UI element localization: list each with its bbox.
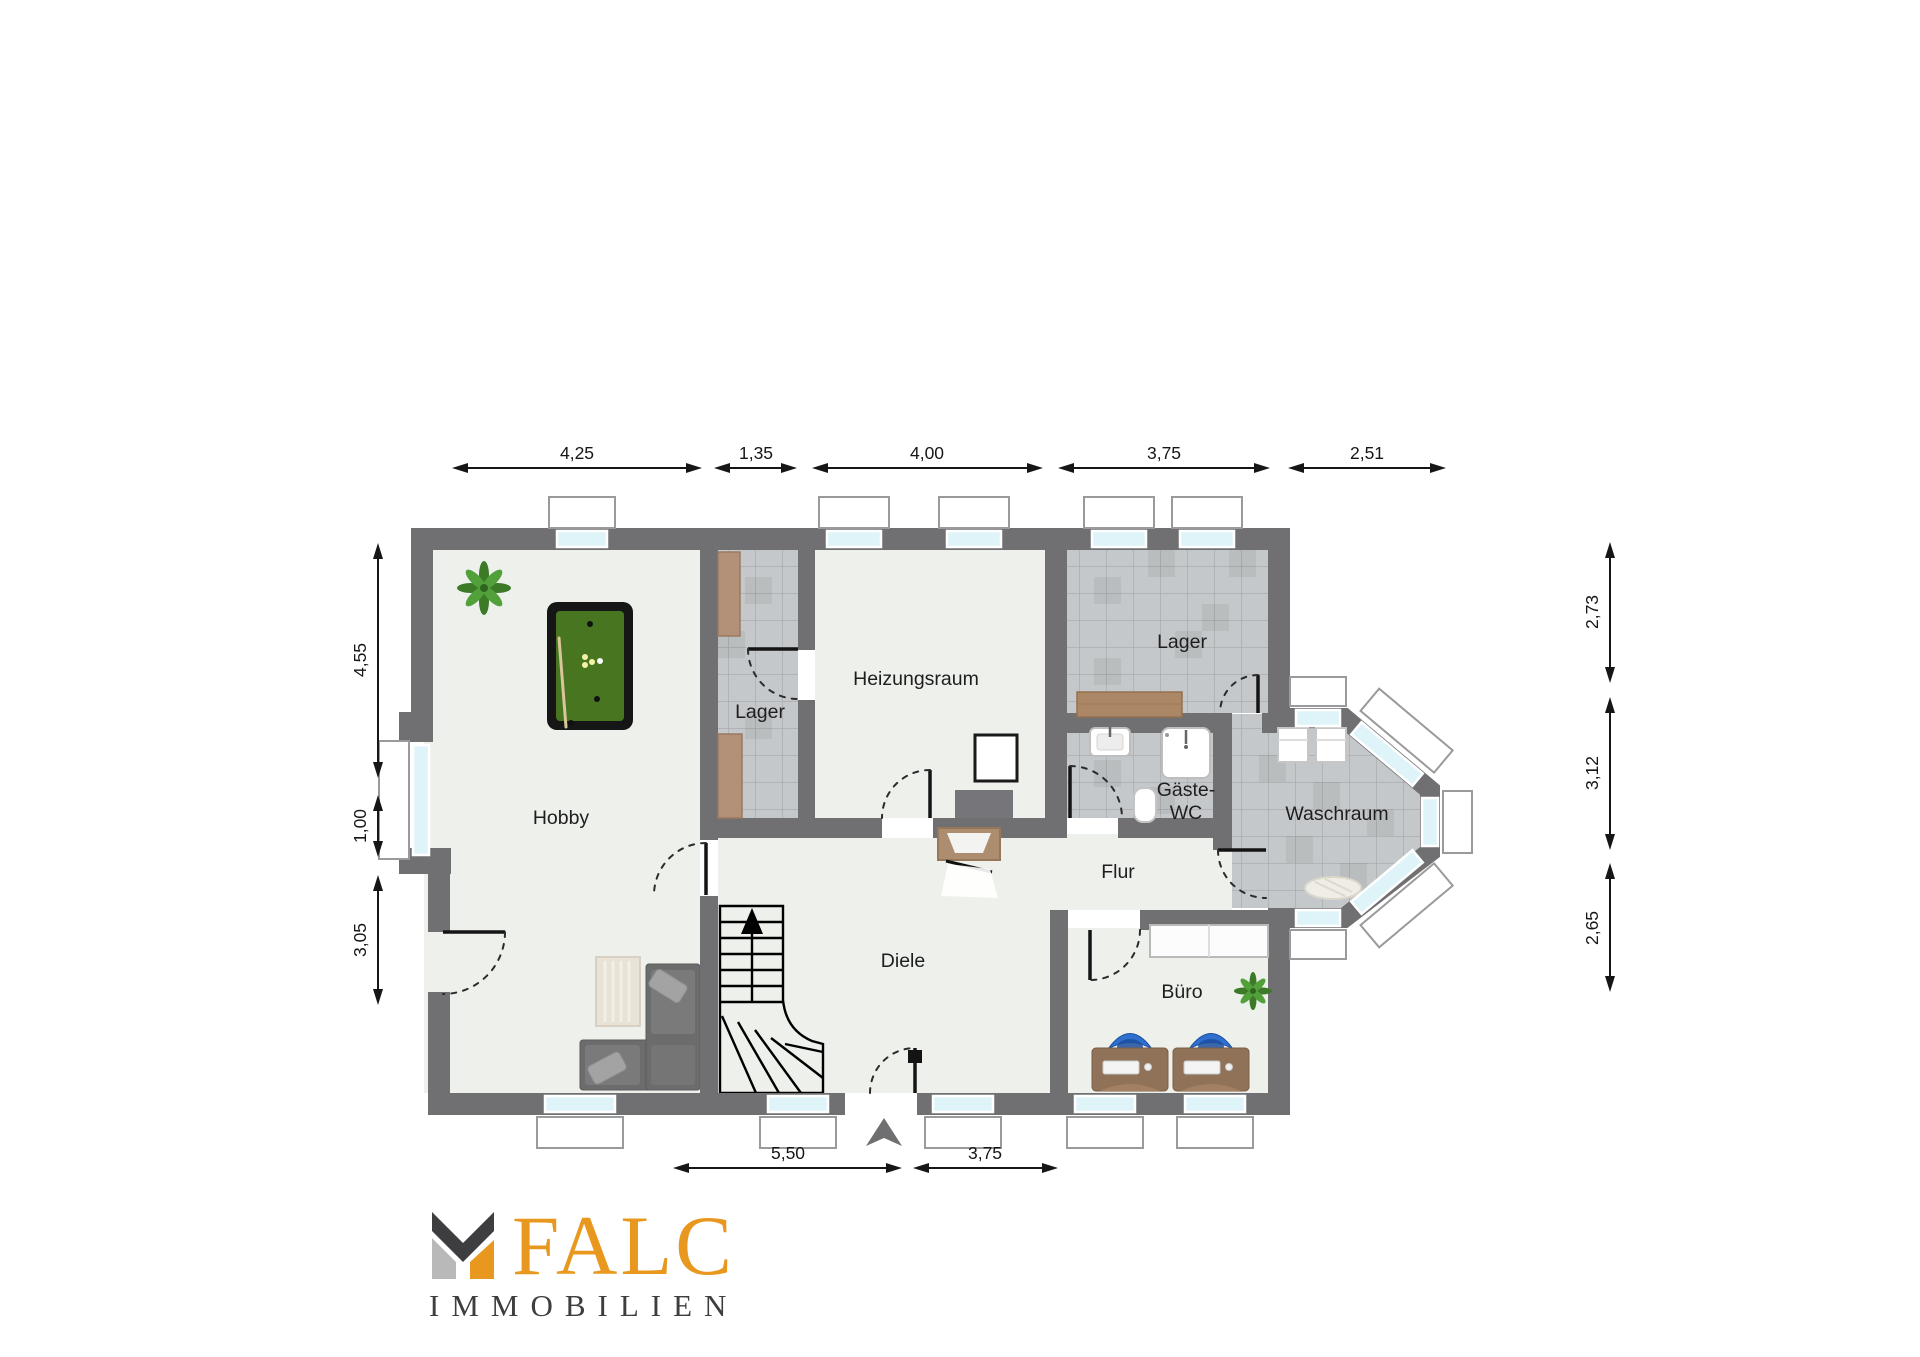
- svg-text:4,00: 4,00: [910, 443, 944, 463]
- room-label-lager-top: Lager: [1157, 631, 1207, 653]
- dryer: [1316, 728, 1346, 762]
- dim-right-1: 3,12: [1582, 697, 1615, 850]
- room-label-waschraum: Waschraum: [1285, 803, 1388, 825]
- dim-top-1: 1,35: [714, 443, 797, 473]
- svg-text:4,55: 4,55: [350, 643, 370, 677]
- svg-text:1,35: 1,35: [739, 443, 773, 463]
- washer: [1278, 728, 1308, 762]
- svg-text:2,51: 2,51: [1350, 443, 1384, 463]
- shelf: [718, 734, 742, 818]
- dim-left-1: 1,00: [350, 795, 383, 857]
- boiler: [975, 735, 1017, 781]
- falc-logo: FALC IMMOBILIEN: [429, 1199, 738, 1323]
- room-label-flur: Flur: [1101, 861, 1135, 883]
- dim-right-2: 2,65: [1582, 863, 1615, 992]
- shower-basin: [1162, 728, 1210, 778]
- dim-bottom-0: 5,50: [673, 1143, 902, 1173]
- ironing-board: [1305, 877, 1361, 899]
- dim-right-0: 2,73: [1582, 542, 1615, 683]
- dim-top-0: 4,25: [452, 443, 702, 473]
- svg-text:4,25: 4,25: [560, 443, 594, 463]
- floor-flur: [1045, 834, 1232, 910]
- svg-text:3,05: 3,05: [350, 923, 370, 957]
- sideboard: [1150, 925, 1268, 957]
- room-label-hobby: Hobby: [533, 807, 590, 829]
- sink: [1090, 727, 1130, 756]
- svg-text:3,75: 3,75: [1147, 443, 1181, 463]
- falc-logo-icon: [432, 1212, 494, 1279]
- dim-top-2: 4,00: [812, 443, 1043, 473]
- heater-unit: [955, 790, 1013, 818]
- svg-text:5,50: 5,50: [771, 1143, 805, 1163]
- svg-text:3,12: 3,12: [1582, 756, 1602, 790]
- room-label-gaeste-wc-2: WC: [1170, 802, 1203, 824]
- dim-left-2: 3,05: [350, 875, 383, 1005]
- room-label-gaeste-wc-1: Gäste-: [1157, 779, 1216, 801]
- dim-top-4: 2,51: [1288, 443, 1446, 473]
- rug: [596, 957, 640, 1026]
- room-label-diele: Diele: [881, 950, 925, 972]
- room-label-lager-small: Lager: [735, 701, 785, 723]
- room-label-buero: Büro: [1161, 981, 1202, 1003]
- dim-left-0: 4,55: [350, 543, 383, 778]
- svg-text:2,65: 2,65: [1582, 911, 1602, 945]
- logo-subtitle: IMMOBILIEN: [429, 1288, 738, 1323]
- shelf: [718, 552, 740, 636]
- dim-top-3: 3,75: [1058, 443, 1270, 473]
- room-label-heizungsraum: Heizungsraum: [853, 668, 979, 690]
- entrance-arrow-icon: [866, 1118, 902, 1146]
- svg-text:2,73: 2,73: [1582, 595, 1602, 629]
- logo-text: FALC: [512, 1199, 735, 1293]
- floor-plan: Hobby Lager Heizungsraum Lager Gäste- WC…: [0, 0, 1920, 1357]
- pool-table: [547, 602, 633, 730]
- svg-text:1,00: 1,00: [350, 809, 370, 843]
- toilet: [1134, 788, 1156, 822]
- svg-text:3,75: 3,75: [968, 1143, 1002, 1163]
- floor-plan-page: Hobby Lager Heizungsraum Lager Gäste- WC…: [0, 0, 1920, 1357]
